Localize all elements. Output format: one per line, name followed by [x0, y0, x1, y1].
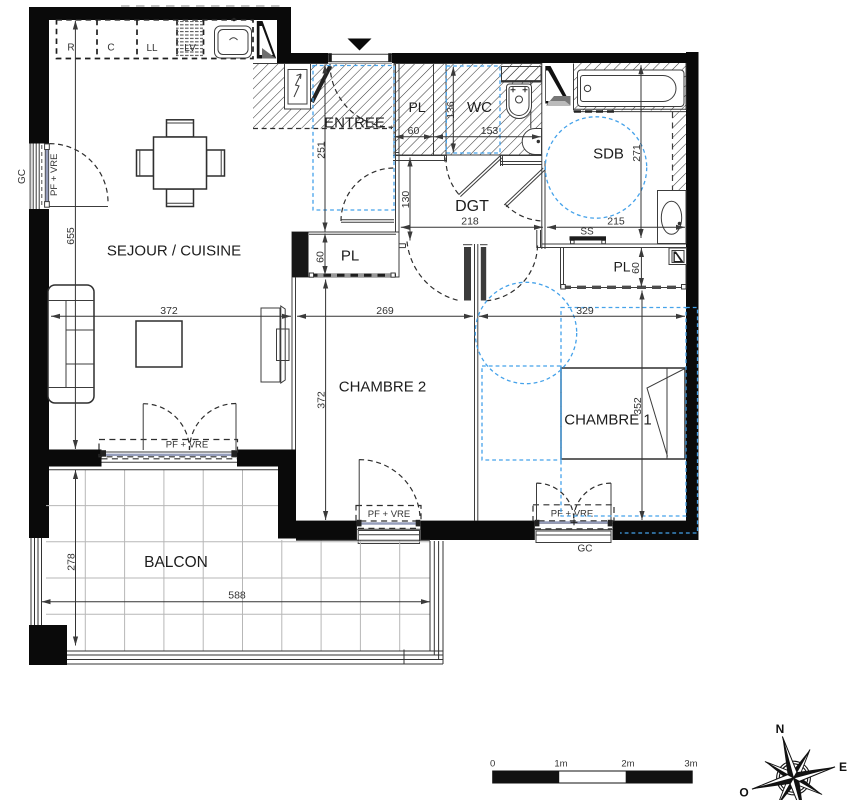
svg-text:PL: PL	[613, 259, 630, 275]
svg-text:E: E	[839, 760, 847, 774]
svg-text:O: O	[739, 786, 748, 800]
svg-text:215: 215	[607, 215, 625, 227]
svg-text:278: 278	[66, 553, 78, 571]
svg-text:2m: 2m	[621, 759, 634, 770]
svg-text:DGT: DGT	[455, 198, 489, 215]
svg-text:271: 271	[631, 144, 643, 162]
svg-text:329: 329	[576, 305, 594, 317]
svg-text:372: 372	[316, 391, 328, 409]
svg-text:PF + VRE: PF + VRE	[49, 154, 60, 197]
svg-text:SDB: SDB	[593, 146, 624, 163]
svg-text:136: 136	[445, 101, 457, 119]
svg-text:251: 251	[316, 141, 328, 159]
svg-text:CHAMBRE 1: CHAMBRE 1	[564, 412, 652, 429]
svg-text:1m: 1m	[554, 759, 567, 770]
svg-text:ENTREE: ENTREE	[324, 115, 385, 132]
svg-text:PF + VRE: PF + VRE	[166, 440, 209, 451]
svg-text:R: R	[67, 43, 74, 54]
svg-text:PF + VRE: PF + VRE	[551, 509, 594, 520]
svg-text:588: 588	[228, 590, 246, 602]
svg-text:60: 60	[630, 262, 642, 274]
svg-text:SS: SS	[580, 227, 594, 238]
svg-text:3m: 3m	[684, 759, 697, 770]
svg-text:655: 655	[65, 227, 77, 245]
svg-text:GC: GC	[578, 544, 593, 555]
svg-text:60: 60	[315, 251, 327, 263]
svg-text:269: 269	[376, 305, 394, 317]
svg-text:N: N	[776, 722, 785, 736]
svg-text:372: 372	[160, 305, 178, 317]
svg-text:PL: PL	[341, 248, 359, 265]
svg-text:C: C	[107, 43, 114, 54]
svg-text:PF + VRE: PF + VRE	[368, 509, 411, 520]
svg-text:PL: PL	[408, 99, 425, 115]
svg-text:218: 218	[461, 215, 479, 227]
svg-text:GC: GC	[17, 169, 28, 184]
svg-text:WC: WC	[467, 99, 492, 116]
svg-text:LL: LL	[146, 43, 158, 54]
svg-text:BALCON: BALCON	[144, 554, 208, 571]
svg-text:60: 60	[408, 125, 420, 137]
svg-text:130: 130	[400, 191, 412, 209]
svg-text:0: 0	[490, 759, 495, 770]
svg-text:CHAMBRE 2: CHAMBRE 2	[339, 379, 427, 396]
svg-text:153: 153	[481, 125, 499, 137]
svg-text:LV: LV	[184, 43, 196, 54]
svg-text:SEJOUR / CUISINE: SEJOUR / CUISINE	[107, 243, 241, 260]
